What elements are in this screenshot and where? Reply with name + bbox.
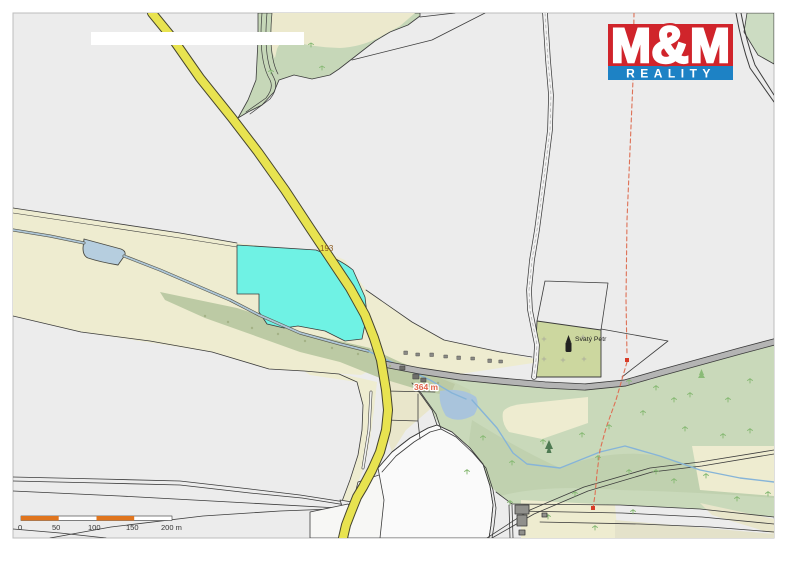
svg-text:0: 0 (18, 523, 22, 532)
svg-text:150: 150 (126, 523, 139, 532)
svg-text:M: M (690, 20, 730, 73)
svg-text:50: 50 (52, 523, 60, 532)
svg-text:REALITY: REALITY (626, 67, 716, 81)
svg-text:M: M (611, 20, 651, 73)
svg-text:200 m: 200 m (161, 523, 182, 532)
svg-text:364 m: 364 m (414, 382, 439, 392)
svg-text:Svatý Petr: Svatý Petr (575, 336, 607, 343)
svg-text:193: 193 (320, 244, 334, 253)
svg-text:100: 100 (88, 523, 101, 532)
